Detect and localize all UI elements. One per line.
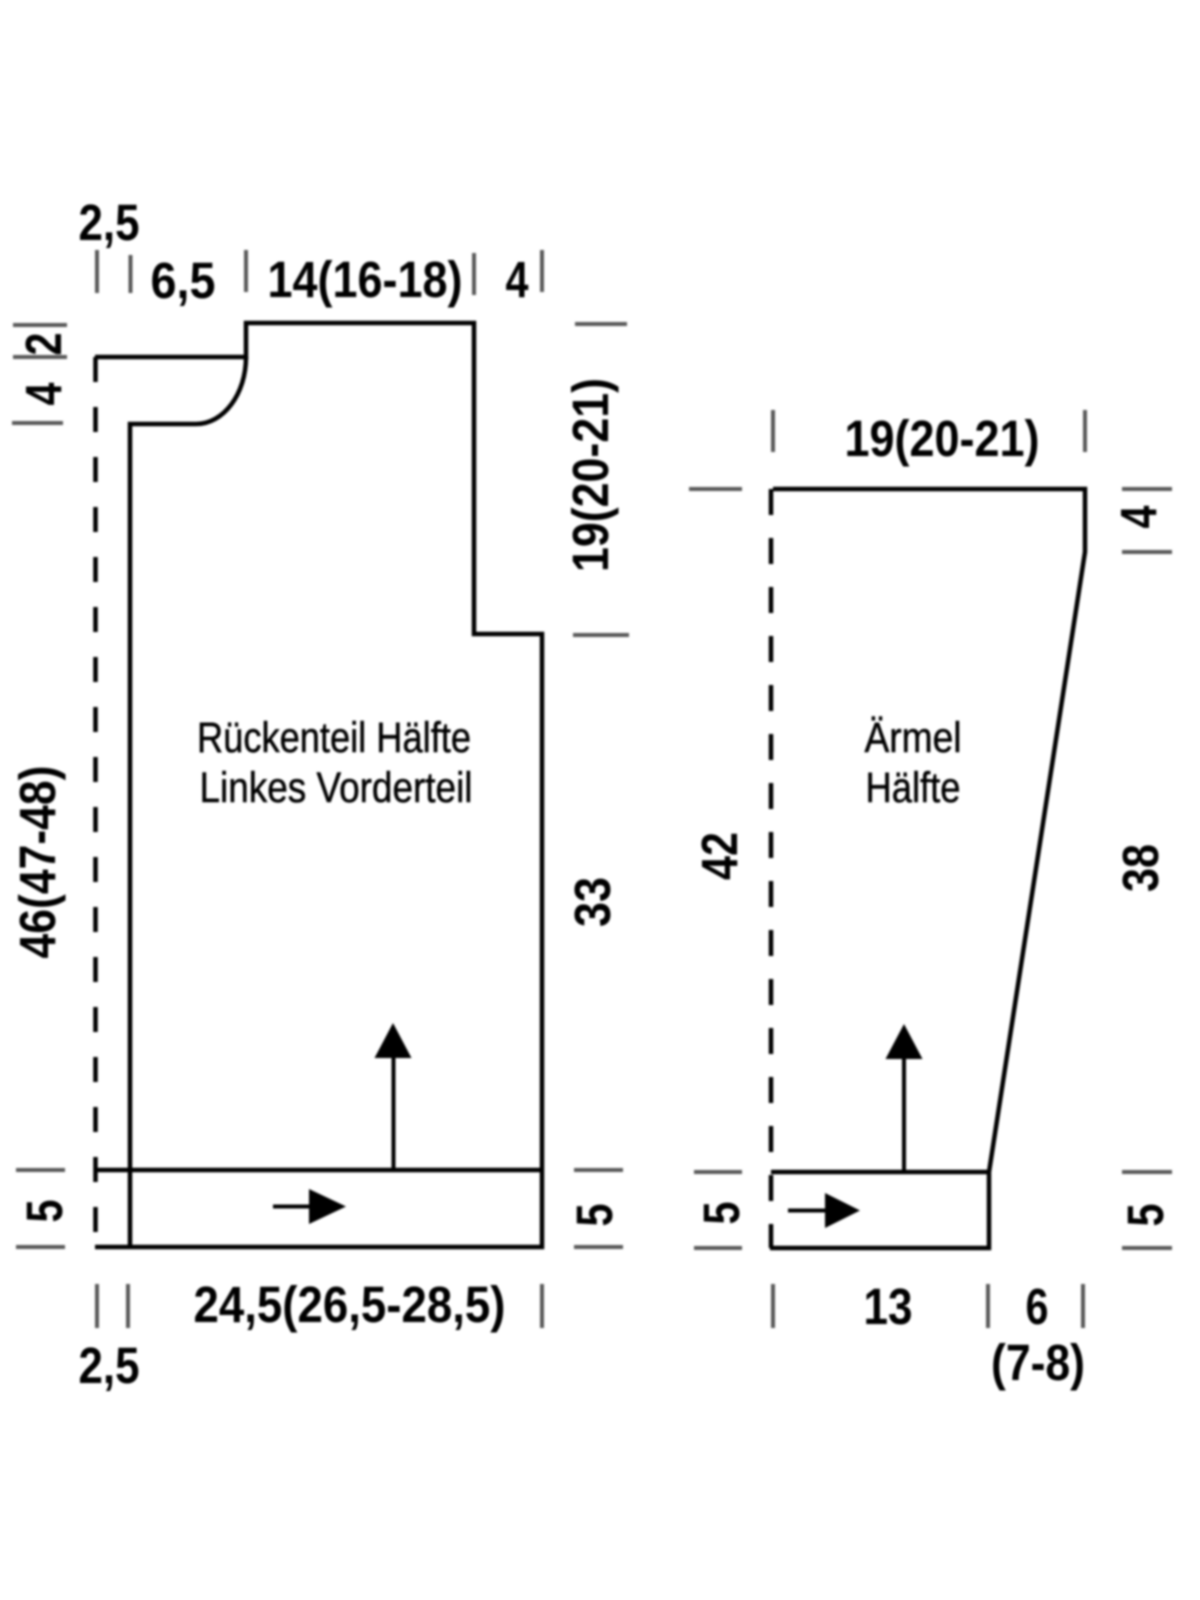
svg-text:5: 5	[1117, 1204, 1174, 1227]
svg-text:6,5: 6,5	[151, 252, 216, 309]
svg-text:5: 5	[16, 1200, 73, 1223]
svg-text:Ärmel: Ärmel	[865, 714, 962, 762]
svg-text:6: 6	[1026, 1278, 1049, 1335]
svg-text:4: 4	[1110, 505, 1167, 529]
svg-text:Rückenteil Hälfte: Rückenteil Hälfte	[197, 714, 471, 762]
svg-text:19(20-21): 19(20-21)	[562, 378, 619, 572]
svg-text:(7-8): (7-8)	[991, 1334, 1085, 1391]
svg-text:14(16-18): 14(16-18)	[268, 251, 463, 308]
svg-text:42: 42	[691, 832, 748, 880]
svg-text:19(20-21): 19(20-21)	[845, 410, 1040, 467]
svg-text:33: 33	[564, 877, 621, 927]
svg-text:5: 5	[693, 1202, 750, 1225]
svg-text:2: 2	[15, 333, 72, 356]
svg-text:Linkes Vorderteil: Linkes Vorderteil	[200, 764, 473, 812]
svg-text:13: 13	[864, 1278, 913, 1335]
svg-text:5: 5	[566, 1204, 623, 1227]
svg-text:4: 4	[15, 382, 72, 406]
svg-text:38: 38	[1112, 844, 1169, 892]
svg-text:24,5(26,5-28,5): 24,5(26,5-28,5)	[194, 1276, 506, 1333]
svg-text:46(47-48): 46(47-48)	[9, 766, 66, 959]
svg-text:4: 4	[506, 251, 530, 308]
svg-text:2,5: 2,5	[79, 1337, 140, 1394]
svg-text:2,5: 2,5	[79, 194, 140, 251]
svg-text:Hälfte: Hälfte	[866, 764, 961, 812]
